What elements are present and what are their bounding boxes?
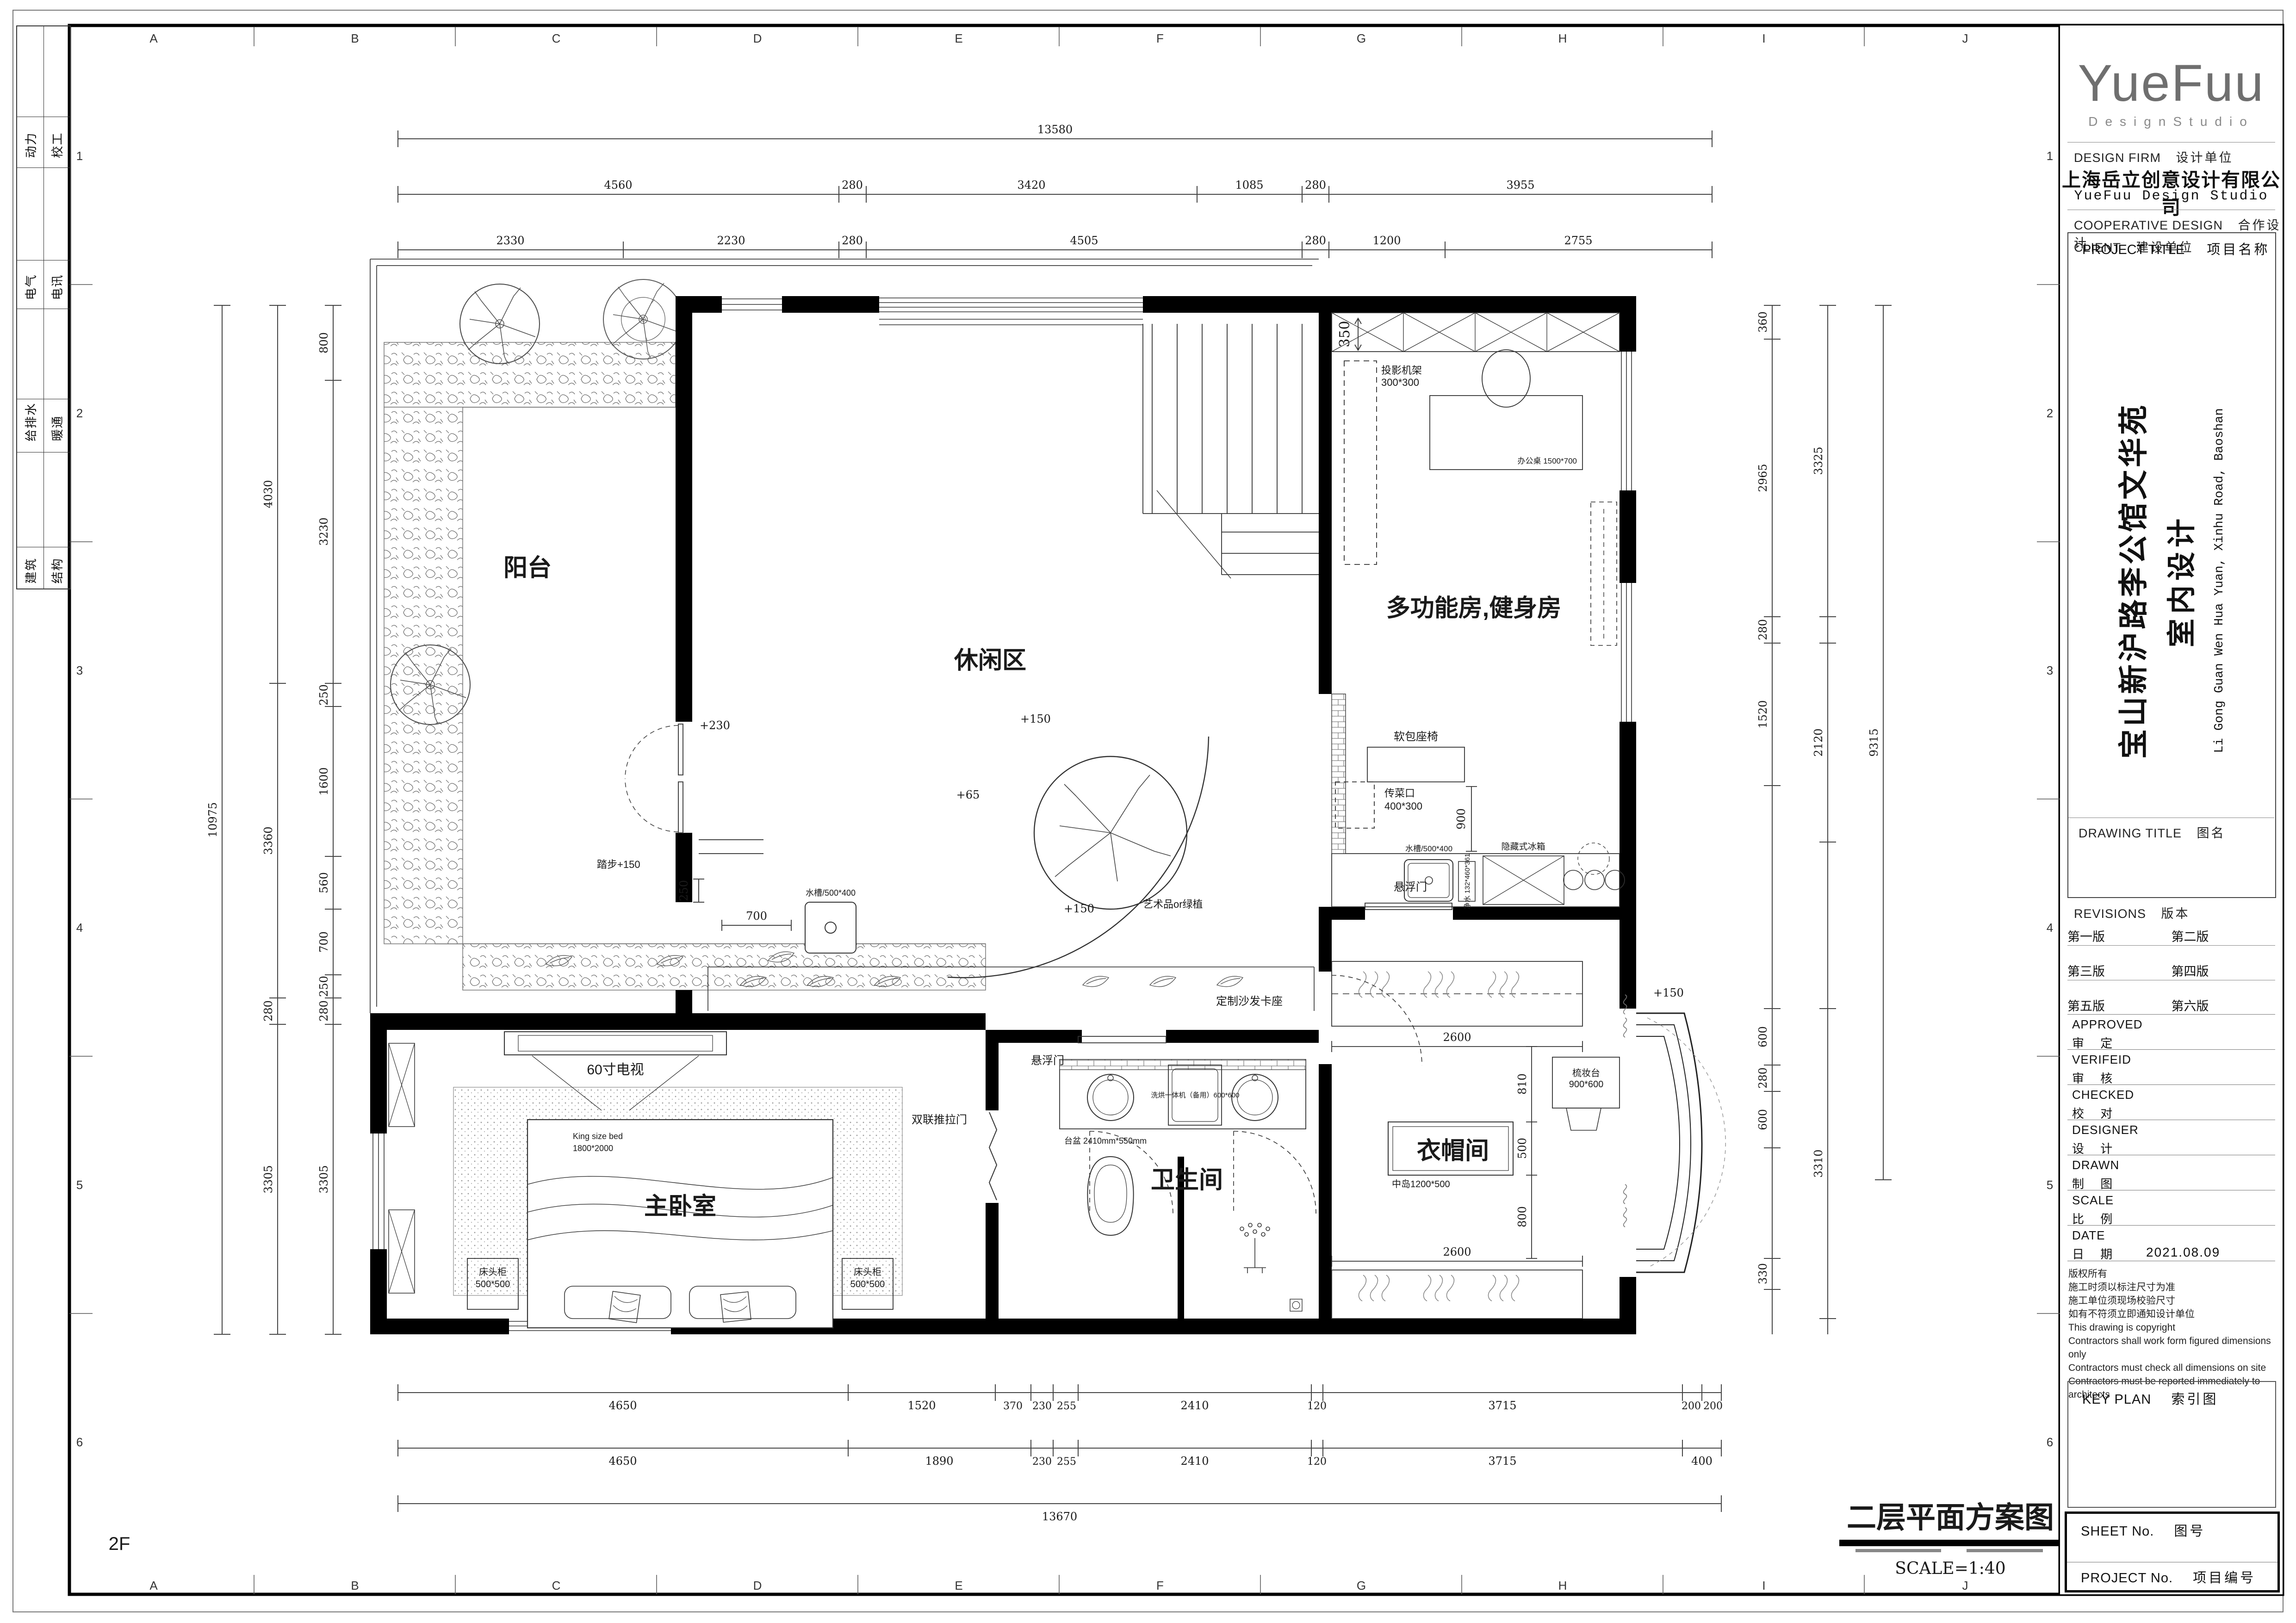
- dim-label: 280: [842, 179, 863, 192]
- grid-number: 6: [76, 1435, 83, 1449]
- float-door-label: 悬浮门: [1394, 881, 1427, 893]
- coop-design-label: COOPERATIVE DESIGN: [2074, 218, 2223, 232]
- dim-label: 4650: [608, 1455, 637, 1468]
- dim-label: 200: [1682, 1400, 1701, 1412]
- room-label-gym: 多功能房,健身房: [1386, 595, 1561, 622]
- bed-size: 1800*2000: [573, 1144, 613, 1153]
- studio-logo: YueFuu: [2060, 53, 2283, 113]
- key-plan-label: KEY PLAN: [2082, 1392, 2151, 1407]
- room-label-balcony: 阳台: [503, 555, 552, 582]
- fridge-label: 隐藏式冰箱: [1501, 842, 1545, 852]
- dim-label: 4030: [262, 480, 275, 508]
- level-label: +150: [1064, 902, 1094, 915]
- design-firm-label-cn: 设计单位: [2176, 151, 2233, 165]
- grid-letter: A: [149, 31, 158, 45]
- project-no-label-cn: 项目编号: [2193, 1571, 2256, 1586]
- float-door-label: 悬浮门: [1031, 1054, 1064, 1067]
- staff-row-scale: SCALE 比 例: [2067, 1190, 2275, 1226]
- nightstand-label: 床头柜: [854, 1267, 881, 1277]
- grid-letter: G: [1357, 1579, 1366, 1592]
- level-label: +65: [956, 788, 980, 801]
- revision-cell: 第四版: [2172, 961, 2276, 979]
- dim-label: 3310: [1812, 1149, 1825, 1177]
- discipline-cell: 电气: [22, 274, 39, 300]
- table-divider: [43, 26, 44, 588]
- dim-label: 2755: [1564, 234, 1592, 247]
- dresser-size: 900*600: [1569, 1079, 1604, 1090]
- dim-label: 280: [842, 234, 863, 247]
- plan-canvas: A B C D E F G H I J A B C D E F G H I J …: [0, 0, 2296, 1623]
- dim-label: 120: [1307, 1456, 1327, 1468]
- dim-label: 120: [1307, 1400, 1327, 1412]
- dim-label: 3305: [317, 1165, 330, 1193]
- pass-size: 400*300: [1384, 800, 1422, 812]
- projector-label: 投影机架: [1381, 365, 1422, 376]
- staff-row-date: DATE 日 期 2021.08.09: [2067, 1225, 2275, 1261]
- grid-letter: B: [351, 1579, 359, 1592]
- island-label: 中岛1200*500: [1392, 1179, 1450, 1189]
- sink-label: 水槽/500*400: [1405, 844, 1452, 853]
- grid-number: 5: [2047, 1178, 2053, 1192]
- grid-letter: D: [753, 31, 762, 45]
- grid-letter: J: [1962, 31, 1968, 45]
- level-label: +150: [1020, 712, 1051, 725]
- french-door: [625, 724, 683, 833]
- dim-label: 2120: [1812, 728, 1825, 756]
- dim-label: 280: [317, 1000, 330, 1022]
- dim-label: 370: [1003, 1400, 1023, 1412]
- nightstand-size: 500*500: [850, 1279, 885, 1289]
- nightstand-label: 床头柜: [479, 1267, 507, 1277]
- grid-letter: E: [955, 1579, 962, 1592]
- dim-label: 3360: [262, 826, 275, 855]
- discipline-cell: 给排水: [22, 415, 39, 441]
- grid-number: 1: [2047, 149, 2053, 163]
- dim-label: 2410: [1180, 1399, 1209, 1412]
- project-name-vertical-2: 室内设计: [2158, 372, 2200, 789]
- date-value: 2021.08.09: [2146, 1245, 2220, 1260]
- level-label: +230: [700, 719, 730, 732]
- dim-label: 13670: [1042, 1510, 1077, 1523]
- discipline-cell: 暖通: [48, 415, 65, 441]
- dim-label: 560: [317, 872, 330, 893]
- pass-label: 传菜口: [1384, 787, 1415, 799]
- bay-window: [1636, 1013, 1725, 1272]
- nightstand-size: 500*500: [476, 1279, 510, 1289]
- dim-label: 280: [1305, 179, 1326, 192]
- step-label: 踏步+150: [597, 859, 640, 870]
- studio-logo-subtitle: DesignStudio: [2060, 114, 2283, 129]
- dim-label: 600: [1756, 1109, 1769, 1130]
- grid-number: 4: [2047, 921, 2053, 935]
- drawing-name: 二层平面方案图: [1847, 1501, 2054, 1534]
- dim-label: 1520: [1756, 700, 1769, 728]
- dim-label: 3715: [1488, 1399, 1516, 1412]
- design-firm-label: DESIGN FIRM: [2074, 151, 2161, 165]
- tv-label: 60寸电视: [587, 1062, 644, 1078]
- dim-label: 700: [317, 931, 330, 953]
- discipline-cell: 建筑: [22, 558, 39, 584]
- dim-label: 250: [317, 684, 330, 706]
- key-plan-box: KEY PLAN 索引图: [2067, 1381, 2276, 1508]
- discipline-cell: 校工: [48, 132, 65, 158]
- discipline-cell: 电讯: [48, 274, 65, 300]
- floor-code: 2F: [109, 1534, 130, 1554]
- dim-label: 800: [1516, 1206, 1529, 1227]
- grid-letter: J: [1962, 1579, 1968, 1592]
- grid-letter: B: [351, 31, 359, 45]
- dim-label: 200: [1703, 1400, 1723, 1412]
- grid-number: 3: [76, 663, 83, 677]
- revisions-label: REVISIONS: [2074, 907, 2146, 921]
- sofa-label: 定制沙发卡座: [1216, 995, 1283, 1008]
- grid-letter: G: [1357, 31, 1366, 45]
- project-title-label: PROJECT TITLE: [2082, 242, 2184, 257]
- grid-number: 6: [2047, 1435, 2053, 1449]
- dim-label: 360: [1756, 311, 1769, 333]
- grid-letter: E: [955, 31, 962, 45]
- dim-label: 1085: [1235, 179, 1263, 192]
- grid-number: 1: [76, 149, 83, 163]
- dim-label: 9315: [1868, 728, 1880, 756]
- drawing-sheet: A B C D E F G H I J A B C D E F G H I J …: [0, 0, 2296, 1623]
- dim-label: 250: [677, 880, 690, 901]
- discipline-table: 动力 校工 电气 电讯 给排水 暖通 建筑 结构: [16, 25, 71, 589]
- grid-letter: I: [1762, 1579, 1765, 1592]
- dim-label: 230: [1032, 1456, 1052, 1468]
- staff-row-drawn: DRAWN 制 图: [2067, 1155, 2275, 1190]
- grid-number: 5: [76, 1178, 83, 1192]
- purifier-label: 净水 132*460*361: [1464, 854, 1471, 910]
- grid-number: 2: [76, 406, 83, 420]
- grid-letter: C: [552, 31, 561, 45]
- washer-label: 洗烘一体机（备用）600*600: [1151, 1091, 1240, 1099]
- desk-label: 办公桌 1500*700: [1517, 457, 1577, 465]
- dim-label: 350: [1337, 321, 1353, 347]
- staff-row-designer: DESIGNER 设 计: [2067, 1120, 2275, 1155]
- stairs: [1143, 324, 1319, 578]
- revision-cell: 第一版: [2067, 927, 2172, 945]
- dim-label: 1890: [925, 1455, 953, 1468]
- dim-label: 800: [317, 332, 330, 353]
- dim-label: 280: [262, 1000, 275, 1022]
- title-block: YueFuu DesignStudio DESIGN FIRM 设计单位 上海岳…: [2060, 25, 2283, 1594]
- sheet-no-label-cn: 图号: [2174, 1524, 2205, 1539]
- dim-label: 400: [1691, 1455, 1713, 1468]
- grid-letter: A: [149, 1579, 158, 1592]
- grid-letter: F: [1156, 31, 1164, 45]
- soft-seat-label: 软包座椅: [1394, 731, 1438, 743]
- staff-row-verified: VERIFEID 审 核: [2067, 1049, 2275, 1085]
- dim-label: 280: [1756, 1067, 1769, 1089]
- grid-number: 4: [76, 921, 83, 935]
- dim-label: 3305: [262, 1165, 275, 1193]
- dim-label: 1200: [1372, 234, 1401, 247]
- dim-label: 250: [317, 976, 330, 997]
- sink-label: 水槽/500*400: [806, 888, 856, 898]
- grid-number: 2: [2047, 406, 2053, 420]
- revision-cell: 第五版: [2067, 996, 2172, 1014]
- key-plan-label-cn: 索引图: [2171, 1392, 2218, 1407]
- dim-label: 3715: [1488, 1455, 1516, 1468]
- dim-label: 2330: [496, 234, 524, 247]
- dim-label: 900: [1455, 808, 1468, 830]
- room-label-cloak: 衣帽间: [1417, 1138, 1489, 1165]
- project-no-label: PROJECT No.: [2081, 1571, 2173, 1586]
- kitchen-strip: [1332, 694, 1625, 910]
- project-name-vertical: 宝山新沪路李公馆文华苑: [2110, 372, 2153, 789]
- drawing-scale: SCALE=1:40: [1895, 1559, 2005, 1578]
- dim-label: 3420: [1017, 179, 1045, 192]
- art-label: 艺术品or绿植: [1143, 898, 1203, 910]
- room-label-leisure: 休闲区: [954, 647, 1026, 674]
- basin-counter-label: 台盆 2410mm*550mm: [1064, 1136, 1147, 1146]
- project-name-en-vertical: Li Gong Guan Wen Hua Yuan, Xinhu Road, B…: [2213, 377, 2227, 784]
- revisions-label-cn: 版本: [2161, 907, 2190, 921]
- level-label: +150: [1653, 986, 1684, 999]
- revision-cell: 第二版: [2172, 927, 2276, 945]
- dim-label: 330: [1756, 1263, 1769, 1284]
- sheet-no-label: SHEET No.: [2081, 1524, 2154, 1539]
- revision-cell: 第六版: [2172, 996, 2276, 1014]
- dim-label: 230: [1032, 1400, 1052, 1412]
- grid-letter: H: [1558, 1579, 1567, 1592]
- grid-letter: C: [552, 1579, 561, 1592]
- room-label-bath: 卫生间: [1151, 1167, 1223, 1194]
- plan-footer: 二层平面方案图 SCALE=1:40 2F: [109, 1501, 2061, 1578]
- dim-label: 810: [1516, 1073, 1529, 1095]
- dim-label: 280: [1305, 234, 1326, 247]
- dim-label: 4650: [608, 1399, 637, 1412]
- grid-letter: D: [753, 1579, 762, 1592]
- dim-label: 2600: [1443, 1031, 1471, 1044]
- sheet-number-box: SHEET No. 图号 PROJECT No. 项目编号: [2065, 1511, 2280, 1592]
- project-title-label-cn: 项目名称: [2207, 242, 2270, 257]
- dim-label: 4560: [604, 179, 632, 192]
- dim-label: 500: [1516, 1138, 1529, 1159]
- dim-label: 700: [746, 910, 767, 923]
- company-name-en: YueFuu Design Studio: [2060, 188, 2283, 204]
- discipline-cell: 结构: [48, 558, 65, 584]
- staff-row-approved: APPROVED 审 定: [2067, 1014, 2275, 1050]
- slide-door-label: 双联推拉门: [912, 1114, 967, 1126]
- drawing-title-label: DRAWING TITLE: [2079, 826, 2182, 840]
- dim-label: 255: [1057, 1400, 1076, 1412]
- drawing-title-label-cn: 图名: [2197, 826, 2225, 840]
- room-label-bedroom: 主卧室: [644, 1193, 716, 1220]
- grid-letter: I: [1762, 31, 1765, 45]
- dim-label: 1600: [317, 767, 330, 795]
- grid-letter: H: [1558, 31, 1567, 45]
- projector-size: 300*300: [1381, 377, 1419, 388]
- discipline-cell: 动力: [22, 132, 39, 158]
- staff-row-checked: CHECKED 校 对: [2067, 1084, 2275, 1120]
- dim-label: 13580: [1037, 123, 1073, 136]
- dim-label: 2230: [717, 234, 745, 247]
- dim-label: 1520: [907, 1399, 936, 1412]
- dim-label: 2965: [1756, 464, 1769, 492]
- dim-label: 3230: [317, 517, 330, 545]
- dim-label: 10975: [206, 802, 219, 837]
- bed-label: King size bed: [573, 1132, 623, 1141]
- dim-label: 255: [1057, 1456, 1076, 1468]
- dresser-label: 梳妆台: [1572, 1068, 1600, 1078]
- dim-label: 280: [1756, 619, 1769, 640]
- dim-label: 3955: [1506, 179, 1534, 192]
- dim-label: 600: [1756, 1026, 1769, 1047]
- grid-letter: F: [1156, 1579, 1164, 1592]
- dim-label: 2600: [1443, 1245, 1471, 1258]
- dim-label: 3325: [1812, 446, 1825, 475]
- bedroom: [389, 1032, 902, 1328]
- grid-number: 3: [2047, 663, 2053, 677]
- dim-label: 4505: [1070, 234, 1098, 247]
- revision-cell: 第三版: [2067, 961, 2172, 979]
- dim-label: 2410: [1180, 1455, 1209, 1468]
